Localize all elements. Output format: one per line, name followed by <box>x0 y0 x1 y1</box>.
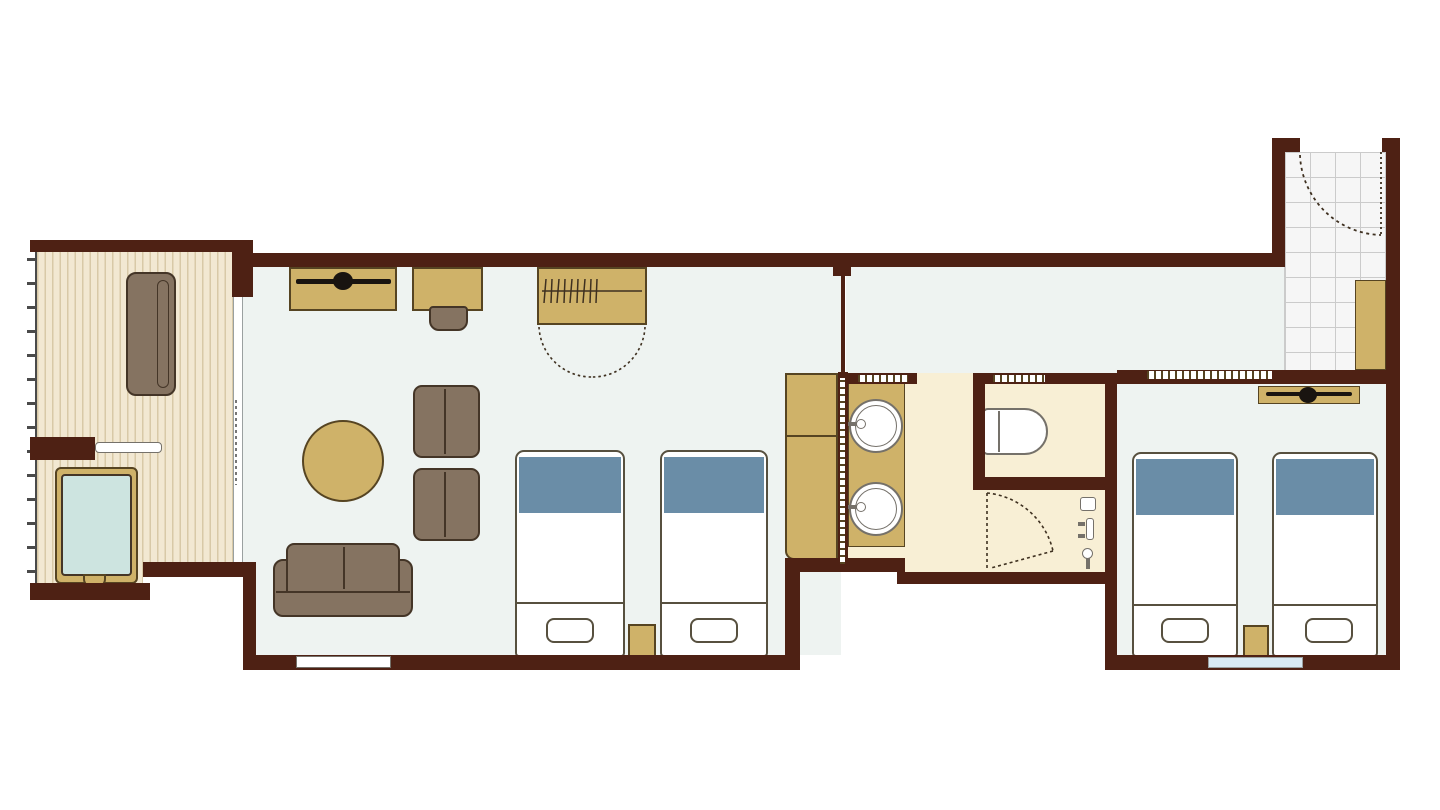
shower-knob-small <box>1078 522 1085 526</box>
faucet-knob <box>856 502 866 512</box>
armchair <box>413 468 480 541</box>
bedroom-left-wall <box>1105 373 1117 670</box>
bench-cushion-line <box>157 280 169 388</box>
shower-knob-small <box>1078 534 1085 538</box>
armchair-armrest-line <box>444 389 446 454</box>
nightstand <box>628 624 656 657</box>
living-right-lower-wall <box>785 572 800 668</box>
minibar-cabinet <box>785 373 838 560</box>
bedroom-sliding-door <box>1147 371 1272 379</box>
balcony-corner-wall <box>232 240 253 297</box>
desk <box>412 267 483 311</box>
shower-fixture-shelf <box>1080 497 1096 511</box>
toilet <box>982 408 1048 455</box>
bed-pillow <box>1276 459 1374 515</box>
washroom-bottom-wall <box>897 572 1117 584</box>
bed-foot-pad <box>1305 618 1353 643</box>
balcony-top-wall <box>30 240 253 252</box>
toilet-tank-line <box>998 411 1000 452</box>
nightstand <box>1243 625 1269 657</box>
armchair <box>413 385 480 458</box>
shoe-cabinet <box>1355 280 1386 370</box>
entry-top-wall-right <box>1382 138 1392 152</box>
bed-foot-pad <box>690 618 738 643</box>
bed-pillow <box>519 457 621 513</box>
balcony-bottom-wall-left <box>30 583 150 600</box>
faucet-knob <box>856 419 866 429</box>
toilet-room-left-wall <box>973 373 985 490</box>
balcony-railing-ticks <box>27 258 36 578</box>
bed-pillow <box>664 457 764 513</box>
twin-bed <box>1272 452 1378 657</box>
bed-foot-pad <box>1161 618 1209 643</box>
tv-symbol-living <box>333 272 353 290</box>
twin-bed <box>1132 452 1238 657</box>
wardrobe <box>537 267 647 325</box>
toilet-sliding-door <box>993 375 1045 382</box>
entry-left-wall <box>1272 138 1285 255</box>
bedroom-window <box>1208 657 1303 668</box>
living-corridor-partition <box>841 270 845 373</box>
toilet-room-bottom-wall <box>973 477 1117 490</box>
shower-mixer-bar <box>1086 518 1094 540</box>
shower-head-stem <box>1086 558 1090 569</box>
balcony-shelf-bar <box>95 442 162 453</box>
bed-foot-line <box>1134 604 1236 606</box>
washroom-pocket-door <box>840 378 845 564</box>
twin-bed <box>660 450 768 657</box>
living-left-lower-wall <box>243 562 256 668</box>
washroom-sliding-door <box>858 375 908 382</box>
desk-chair <box>429 306 468 331</box>
sofa-cushion-divider <box>343 547 345 589</box>
balcony-glass-door <box>233 297 243 562</box>
corridor-floor <box>846 267 1286 373</box>
minibar-divider <box>787 435 836 437</box>
balcony-bench <box>126 272 176 396</box>
tv-symbol-bedroom <box>1299 387 1317 403</box>
bed-foot-line <box>662 602 766 604</box>
armchair-armrest-line <box>444 472 446 537</box>
floor-plan-canvas <box>0 0 1440 810</box>
living-room-window <box>296 656 391 668</box>
bed-foot-pad <box>546 618 594 643</box>
bed-foot-line <box>517 602 623 604</box>
corridor-entry-divider-line <box>1284 255 1286 373</box>
sofa-cushions <box>286 543 400 593</box>
east-outer-wall <box>1386 138 1400 670</box>
main-top-wall <box>253 253 1285 267</box>
bed-pillow <box>1136 459 1234 515</box>
balcony-bottom-wall-right <box>143 562 256 577</box>
twin-bed <box>515 450 625 657</box>
balcony-mid-wall-stub <box>30 437 95 460</box>
sofa-back-line <box>276 591 410 593</box>
bed-foot-line <box>1274 604 1376 606</box>
outdoor-bathtub-water <box>61 474 132 576</box>
round-table <box>302 420 384 502</box>
